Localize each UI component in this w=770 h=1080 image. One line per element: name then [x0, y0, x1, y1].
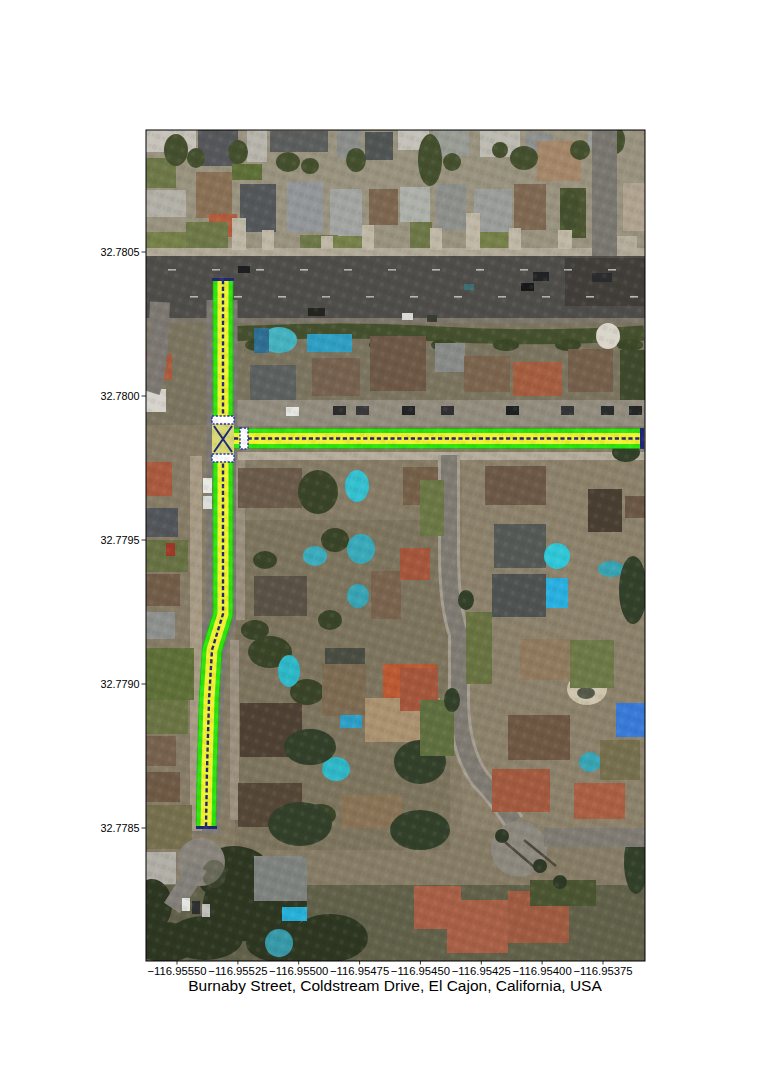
svg-text:−116.95450: −116.95450 — [391, 965, 450, 977]
svg-text:−116.95550: −116.95550 — [147, 965, 206, 977]
svg-text:−116.95500: −116.95500 — [269, 965, 328, 977]
svg-text:−116.95475: −116.95475 — [330, 965, 389, 977]
svg-text:−116.95400: −116.95400 — [513, 965, 572, 977]
svg-text:32.7790: 32.7790 — [100, 678, 139, 690]
svg-text:32.7785: 32.7785 — [100, 822, 139, 834]
svg-text:−116.95375: −116.95375 — [573, 965, 632, 977]
svg-text:Burnaby Street, Coldstream Dri: Burnaby Street, Coldstream Drive, El Caj… — [188, 977, 602, 994]
svg-text:32.7795: 32.7795 — [100, 534, 139, 546]
svg-text:−116.95525: −116.95525 — [208, 965, 267, 977]
svg-text:32.7805: 32.7805 — [100, 246, 139, 258]
svg-text:−116.95425: −116.95425 — [452, 965, 511, 977]
svg-text:32.7800: 32.7800 — [100, 390, 139, 402]
